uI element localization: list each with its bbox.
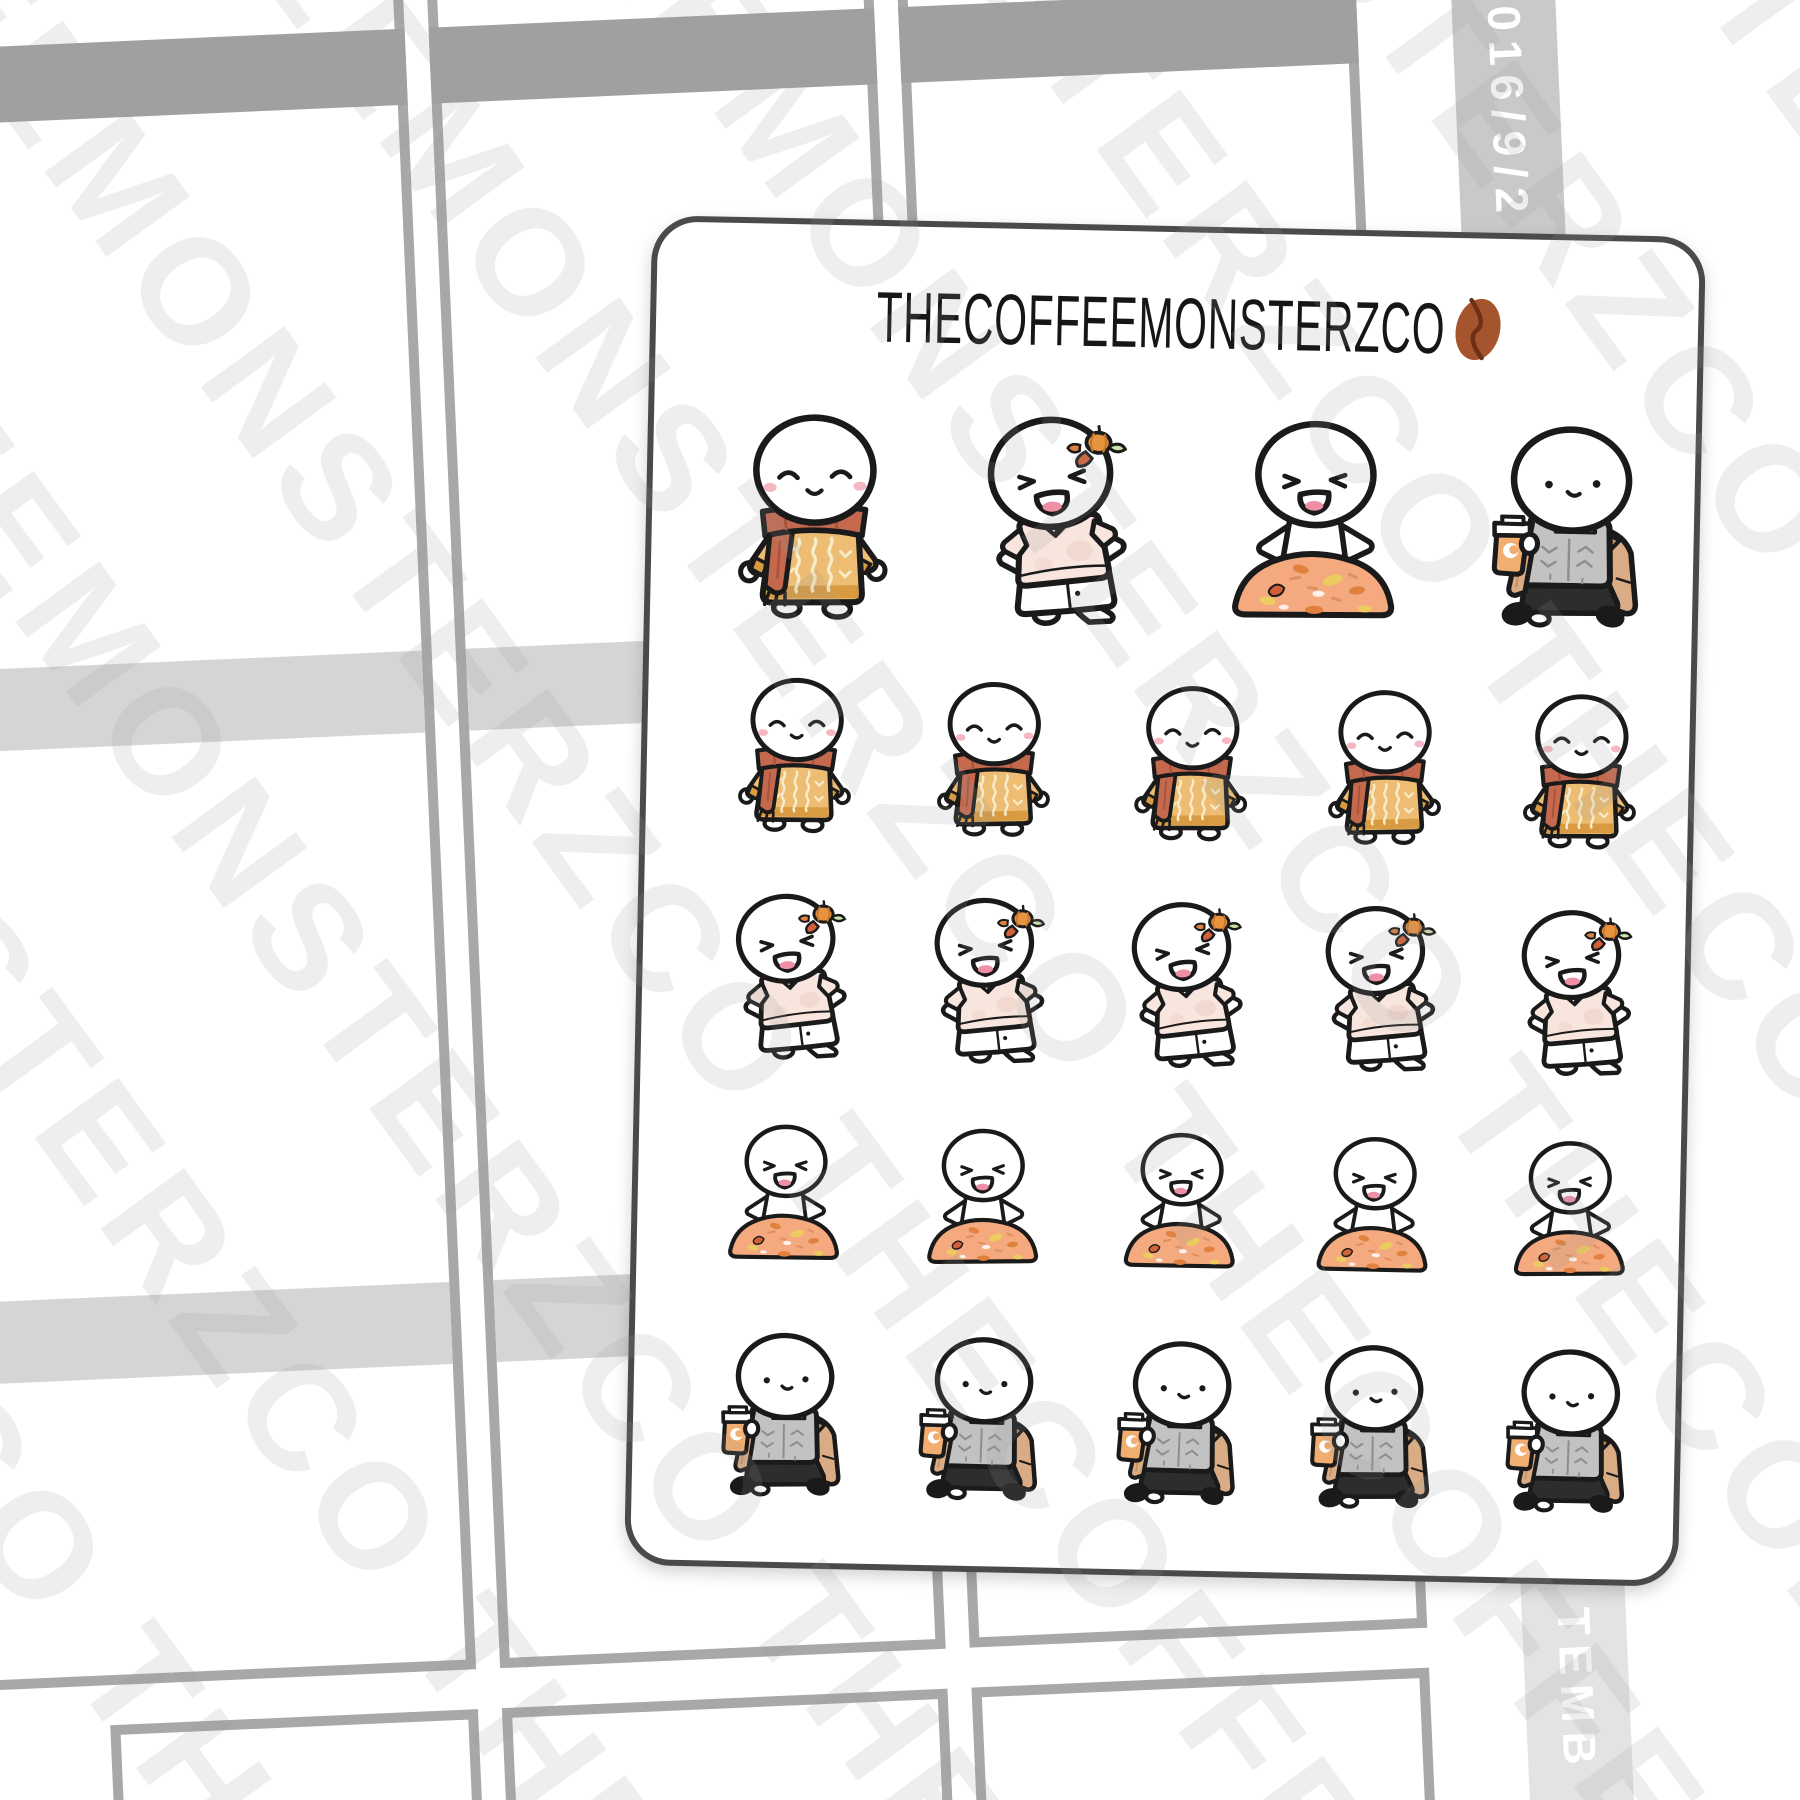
- brand-logo-text: THECOFFEEMONSTERZCO: [876, 271, 1446, 375]
- sticker-leaf-pile: [1110, 1130, 1253, 1279]
- date-strip-top-text: 2016/9/2: [1475, 0, 1540, 223]
- sticker-pumpkin-flower-outfit: [953, 413, 1159, 629]
- date-strip-bottom-text: TEMB: [1547, 1606, 1608, 1775]
- sticker-sheet: THECOFFEEMONSTERZCO: [624, 215, 1706, 1587]
- sticker-sweater-coat-coffee: [894, 1334, 1063, 1511]
- planner-box: [110, 1709, 499, 1800]
- sticker-pumpkin-flower-outfit: [1297, 902, 1462, 1075]
- planner-box: [971, 1668, 1450, 1800]
- column-header-bar: [898, 0, 1359, 83]
- sticker-fall-sweater-scarf: [1501, 688, 1658, 853]
- sticker-sweater-coat-coffee: [1092, 1338, 1262, 1516]
- sticker-sweater-coat-coffee: [699, 1332, 864, 1505]
- sticker-fall-sweater-scarf: [716, 672, 874, 837]
- sticker-leaf-pile: [715, 1122, 857, 1271]
- planner-box: [502, 1689, 969, 1800]
- sticker-leaf-pile: [914, 1128, 1053, 1274]
- sticker-leaf-pile: [1213, 418, 1419, 634]
- sticker-leaf-pile: [1501, 1140, 1641, 1286]
- column-divider-band: [0, 651, 425, 755]
- sticker-pumpkin-flower-outfit: [1106, 900, 1267, 1069]
- sheet-header: THECOFFEEMONSTERZCO: [639, 271, 1682, 375]
- sticker-sweater-coat-coffee: [1482, 1346, 1651, 1523]
- planner-column: [0, 0, 476, 1692]
- sticker-fall-sweater-scarf: [1112, 680, 1269, 844]
- sticker-fall-sweater-scarf: [1307, 686, 1461, 847]
- sticker-fall-sweater-scarf: [916, 678, 1070, 840]
- column-header-bar: [429, 8, 878, 103]
- sticker-sweater-coat-coffee: [1463, 423, 1669, 639]
- sticker-pumpkin-flower-outfit: [1492, 906, 1658, 1079]
- sticker-fall-sweater-scarf: [710, 407, 916, 623]
- sticker-sweater-coat-coffee: [1287, 1344, 1453, 1518]
- sticker-pumpkin-flower-outfit: [906, 894, 1071, 1066]
- column-header-bar: [0, 29, 408, 128]
- sticker-pumpkin-flower-outfit: [709, 891, 871, 1061]
- scene: 2016/9/2 TEMB THECOFFEEMONSTERZCO THECOF…: [0, 0, 1800, 1800]
- column-divider-band: [0, 1282, 453, 1386]
- sticker-leaf-pile: [1303, 1134, 1446, 1284]
